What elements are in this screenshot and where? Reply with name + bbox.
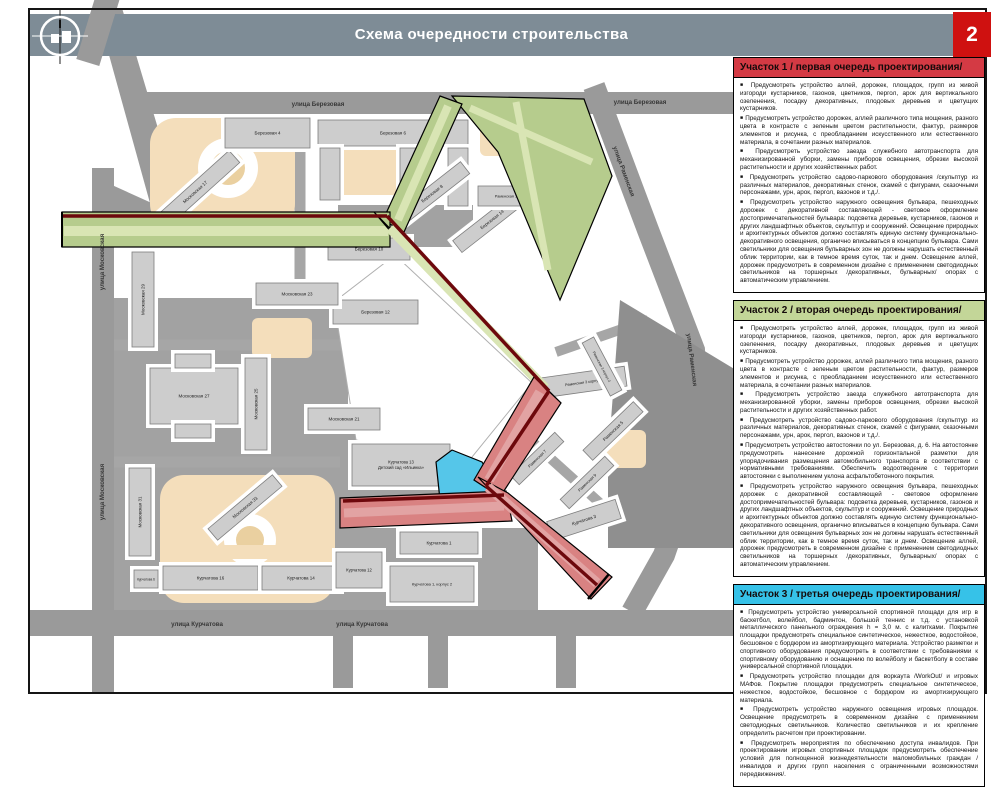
building	[171, 350, 215, 372]
building-label: Московская 31	[138, 496, 143, 527]
bullet-square-icon: ■	[740, 199, 746, 205]
spec-bullet: ■ Предусмотреть устройство площадки для …	[740, 673, 978, 704]
building-label: Курчатова 1	[426, 541, 452, 546]
building-label: Московская 27	[179, 394, 210, 399]
page-number-tab: 2	[953, 12, 991, 57]
street-label-moskovskaya: улица Московская	[99, 233, 106, 290]
building	[316, 144, 344, 204]
road-stub	[333, 636, 353, 688]
panels-column: Участок 1 / первая очередь проектировани…	[733, 57, 985, 794]
courtyard	[252, 318, 312, 358]
page-title: Схема очередности строительства	[30, 26, 953, 43]
bullet-square-icon: ■	[740, 391, 748, 397]
spec-bullet: ■ Предусмотреть устройство универсальной…	[740, 609, 978, 671]
building-курчатова-1: Курчатова 1	[396, 528, 482, 558]
panel-body-uchastok-1: ■ Предусмотреть устройство аллей, дороже…	[734, 78, 984, 292]
building-label: Московская 21	[329, 417, 360, 422]
building-березовая-4: Березовая 4	[221, 114, 314, 152]
bullet-square-icon: ■	[740, 483, 746, 489]
courtyard	[160, 545, 330, 559]
bullet-square-icon: ■	[740, 358, 743, 364]
building-label: Московская 25	[254, 388, 259, 419]
bullet-square-icon: ■	[740, 325, 746, 331]
panel-header-uchastok-2: Участок 2 / вторая очередь проектировани…	[734, 301, 984, 321]
building-label: Курчатова 12	[346, 568, 372, 573]
building-московская-29: Московская 29	[128, 248, 158, 351]
spec-bullet: ■ Предусмотреть устройство аллей, дороже…	[740, 325, 978, 356]
bullet-square-icon: ■	[740, 82, 746, 88]
street-label-kurchatova: улица Курчатова	[171, 621, 223, 628]
spec-bullet: ■ Предусмотреть устройство садово-парков…	[740, 174, 978, 197]
panel-header-uchastok-1: Участок 1 / первая очередь проектировани…	[734, 58, 984, 78]
panel-uchastok-1: Участок 1 / первая очередь проектировани…	[733, 57, 985, 293]
bullet-square-icon: ■	[740, 706, 747, 712]
building-курчатова-1-корпус-2: Курчатова 1, корпус 2	[386, 562, 478, 606]
panel-body-uchastok-3: ■ Предусмотреть устройство универсальной…	[734, 605, 984, 786]
building-label: Курчатова 14	[287, 576, 315, 581]
building-курчатова-6: Курчатова 6	[130, 566, 162, 592]
bullet-square-icon: ■	[740, 115, 743, 121]
building-московская-23: Московская 23	[252, 279, 342, 309]
building-label: Березовая 6	[380, 131, 406, 136]
building-label: Курчатова 16	[197, 576, 225, 581]
street-label-kurchatova: улица Курчатова	[336, 621, 388, 628]
spec-bullet: ■ Предусмотреть устройство наружного осв…	[740, 483, 978, 569]
spec-bullet: ■ Предусмотреть устройство заезда служеб…	[740, 148, 978, 171]
building-label: Курчатова 6	[137, 578, 155, 582]
building-московская-31: Московская 31	[125, 464, 155, 560]
road-stub	[428, 636, 448, 688]
spec-bullet: ■ Предусмотреть устройство заезда служеб…	[740, 391, 978, 414]
panel-uchastok-3: Участок 3 / третья очередь проектировани…	[733, 584, 985, 787]
building-московская-27: Московская 27	[146, 364, 242, 428]
building-label: Московская 29	[141, 284, 146, 315]
spec-bullet: ■ Предусмотреть мероприятия по обеспечен…	[740, 740, 978, 779]
bullet-square-icon: ■	[740, 174, 745, 180]
spec-bullet: ■ Предусмотреть устройство наружного осв…	[740, 706, 978, 737]
building-московская-25: Московская 25	[241, 354, 271, 454]
bullet-square-icon: ■	[740, 609, 745, 615]
building-label: Березовая 4	[255, 131, 281, 136]
title-bar: Схема очередности строительства	[30, 14, 953, 56]
bullet-square-icon: ■	[740, 148, 748, 154]
panel-body-uchastok-2: ■ Предусмотреть устройство аллей, дороже…	[734, 321, 984, 576]
building-березовая-12: Березовая 12	[329, 296, 422, 328]
bullet-square-icon: ■	[740, 417, 745, 423]
spec-bullet: ■ Предусмотреть устройство дорожек, алле…	[740, 115, 978, 146]
spec-bullet: ■ Предусмотреть устройство аллей, дороже…	[740, 82, 978, 113]
street-label-moskovskaya: улица Московская	[99, 463, 106, 520]
building-курчатова-16: Курчатова 16	[159, 562, 262, 594]
spec-bullet: ■ Предусмотреть устройство наружного осв…	[740, 199, 978, 285]
spec-bullet: ■ Предусмотреть устройство автостоянки п…	[740, 442, 978, 481]
street-label-berezovaya: улица Березовая	[292, 101, 345, 108]
road-stub	[556, 636, 576, 688]
street-label-berezovaya: улица Березовая	[614, 99, 667, 106]
building-московская-21: Московская 21	[304, 404, 384, 434]
bullet-square-icon: ■	[740, 442, 743, 448]
panel-uchastok-2: Участок 2 / вторая очередь проектировани…	[733, 300, 985, 577]
building-курчатова-12: Курчатова 12	[332, 548, 386, 592]
spec-bullet: ■ Предусмотреть устройство дорожек, алле…	[740, 358, 978, 389]
panel-header-uchastok-3: Участок 3 / третья очередь проектировани…	[734, 585, 984, 605]
building-курчатова-14: Курчатова 14	[258, 562, 344, 594]
bullet-square-icon: ■	[740, 673, 745, 679]
building	[171, 420, 215, 442]
building-label: Курчатова 1, корпус 2	[412, 582, 453, 587]
bullet-square-icon: ■	[740, 740, 746, 746]
compass-logo-icon	[32, 8, 88, 69]
spec-bullet: ■ Предусмотреть устройство садово-парков…	[740, 417, 978, 440]
building-label: Московская 23	[282, 292, 313, 297]
building-label: Березовая 12	[361, 310, 390, 315]
